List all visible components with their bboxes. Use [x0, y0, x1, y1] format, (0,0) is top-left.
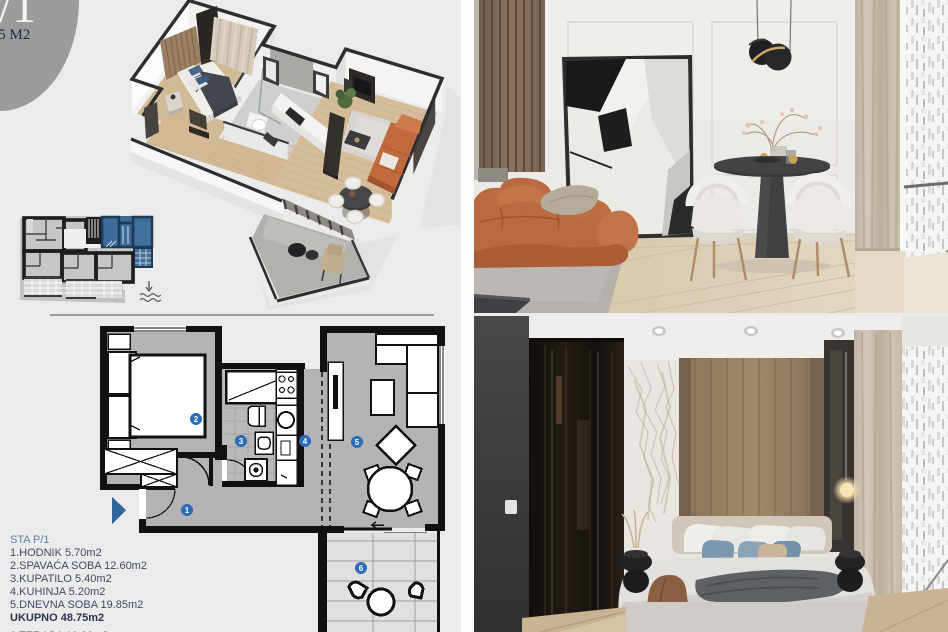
- svg-text:5: 5: [355, 438, 360, 447]
- svg-text:4.KUHINJA 5.20m2: 4.KUHINJA 5.20m2: [10, 586, 105, 598]
- svg-text:3: 3: [239, 437, 244, 446]
- svg-text:6: 6: [359, 564, 364, 573]
- svg-text:4: 4: [303, 437, 308, 446]
- svg-text:1.HODNIK 5.70m2: 1.HODNIK 5.70m2: [10, 547, 102, 559]
- svg-text:3.KUPATILO 5.40m2: 3.KUPATILO 5.40m2: [10, 573, 112, 585]
- svg-text:5.DNEVNA SOBA 19.85m2: 5.DNEVNA SOBA 19.85m2: [10, 599, 143, 611]
- svg-text:2.SPAVAĆA SOBA 12.60m2: 2.SPAVAĆA SOBA 12.60m2: [10, 559, 147, 572]
- svg-text:48.65 M2: 48.65 M2: [0, 27, 30, 43]
- svg-text:2: 2: [194, 415, 199, 424]
- svg-text:UKUPNO 48.75m2: UKUPNO 48.75m2: [10, 612, 104, 624]
- svg-text:STA P/1: STA P/1: [10, 534, 50, 546]
- svg-text:1: 1: [185, 506, 190, 515]
